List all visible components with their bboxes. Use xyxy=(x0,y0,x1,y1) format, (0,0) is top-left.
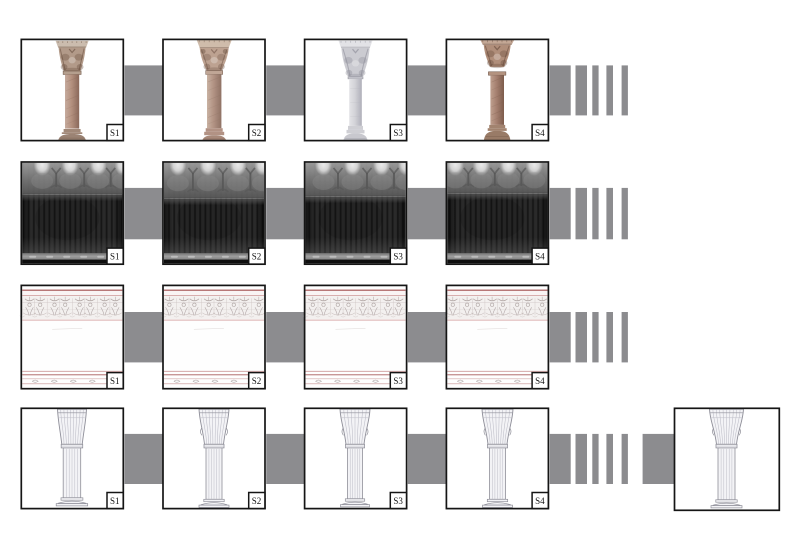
svg-text:S1: S1 xyxy=(110,128,120,138)
svg-text:S1: S1 xyxy=(110,251,120,261)
svg-text:S3: S3 xyxy=(393,496,403,506)
svg-text:S1: S1 xyxy=(110,496,120,506)
svg-text:S4: S4 xyxy=(535,376,545,386)
svg-text:S2: S2 xyxy=(252,251,262,261)
svg-text:S1: S1 xyxy=(110,376,120,386)
svg-text:S2: S2 xyxy=(252,376,262,386)
svg-text:S2: S2 xyxy=(252,128,262,138)
svg-text:S2: S2 xyxy=(252,496,262,506)
svg-text:S4: S4 xyxy=(535,251,545,261)
svg-text:S4: S4 xyxy=(535,496,545,506)
svg-text:S3: S3 xyxy=(393,251,403,261)
svg-text:S4: S4 xyxy=(535,128,545,138)
svg-text:S3: S3 xyxy=(393,128,403,138)
svg-text:S3: S3 xyxy=(393,376,403,386)
